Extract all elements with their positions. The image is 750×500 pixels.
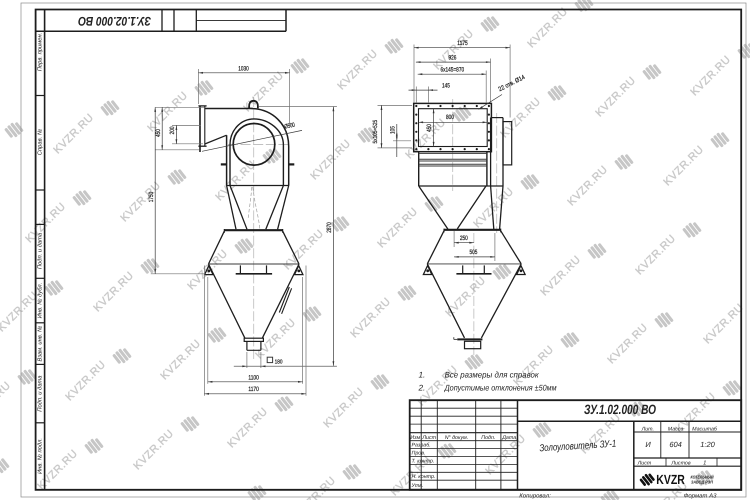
svg-text:6x145=870: 6x145=870	[441, 66, 465, 73]
svg-text:ЗУ.1.02.000 ВО: ЗУ.1.02.000 ВО	[584, 402, 656, 417]
svg-text:KVZR: KVZR	[656, 472, 685, 487]
svg-text:1.: 1.	[419, 371, 426, 380]
svg-text:1: 1	[703, 460, 706, 466]
svg-text:1100: 1100	[248, 374, 259, 381]
svg-text:Подп.: Подп.	[481, 435, 495, 441]
svg-text:Утв.: Утв.	[412, 483, 424, 489]
svg-text:Формат А3: Формат А3	[684, 493, 717, 500]
svg-text:Т. контр.: Т. контр.	[412, 458, 435, 464]
svg-text:145: 145	[442, 82, 450, 89]
svg-text:1750: 1750	[148, 191, 155, 202]
svg-text:Подп. и дата: Подп. и дата	[37, 232, 44, 269]
svg-text:Пров.: Пров.	[412, 451, 426, 457]
svg-text:200: 200	[169, 126, 176, 134]
svg-text:604: 604	[669, 440, 682, 449]
svg-text:Масштаб: Масштаб	[692, 426, 718, 432]
svg-text:Разраб.: Разраб.	[412, 443, 431, 449]
svg-text:1030: 1030	[238, 66, 249, 73]
svg-text:Справ. №: Справ. №	[37, 128, 44, 155]
svg-text:Изм: Изм	[410, 435, 420, 441]
svg-text:Взам. инв. №: Взам. инв. №	[38, 325, 44, 362]
svg-text:Перв. примен.: Перв. примен.	[38, 33, 44, 72]
svg-text:Инв. № подл.: Инв. № подл.	[37, 438, 44, 474]
svg-text:450: 450	[155, 129, 162, 137]
svg-text:Все размеры для справок: Все размеры для справок	[445, 371, 540, 380]
svg-text:И: И	[645, 440, 651, 449]
svg-text:Лит.: Лит.	[641, 426, 654, 432]
svg-text:Масса: Масса	[668, 426, 684, 432]
svg-text:450: 450	[426, 124, 433, 132]
svg-text:5x105=525: 5x105=525	[372, 119, 379, 143]
svg-text:Дата: Дата	[501, 435, 516, 441]
svg-text:505: 505	[470, 249, 478, 256]
svg-text:2870: 2870	[326, 222, 333, 233]
svg-text:1:20: 1:20	[700, 440, 715, 449]
svg-text:Подп. и дата: Подп. и дата	[37, 375, 44, 412]
svg-text:Листов: Листов	[670, 460, 691, 466]
svg-text:Инв. № дубл.: Инв. № дубл.	[37, 283, 44, 319]
svg-text:Лист: Лист	[637, 460, 652, 466]
svg-text:N° докум.: N° докум.	[445, 435, 469, 441]
svg-text:2.: 2.	[418, 383, 426, 392]
svg-text:Допустимые отклонения ±50мм: Допустимые отклонения ±50мм	[444, 383, 557, 392]
svg-text:Копировал:: Копировал:	[519, 493, 551, 500]
svg-text:105: 105	[390, 126, 397, 134]
svg-text:ЗУ.1.02.000 ВО: ЗУ.1.02.000 ВО	[78, 14, 151, 28]
svg-text:926: 926	[449, 54, 457, 61]
svg-text:1170: 1170	[248, 386, 259, 393]
svg-text:КОТЕЛЬНЫЙ: КОТЕЛЬНЫЙ	[691, 474, 715, 479]
svg-text:1175: 1175	[457, 40, 468, 47]
svg-text:800: 800	[446, 114, 454, 121]
svg-text:Лист: Лист	[421, 435, 436, 441]
svg-text:ЗАВОД РЭП: ЗАВОД РЭП	[691, 480, 714, 485]
svg-text:180: 180	[275, 358, 283, 365]
svg-text:250: 250	[460, 235, 468, 242]
svg-text:Н. контр.: Н. контр.	[412, 474, 436, 480]
